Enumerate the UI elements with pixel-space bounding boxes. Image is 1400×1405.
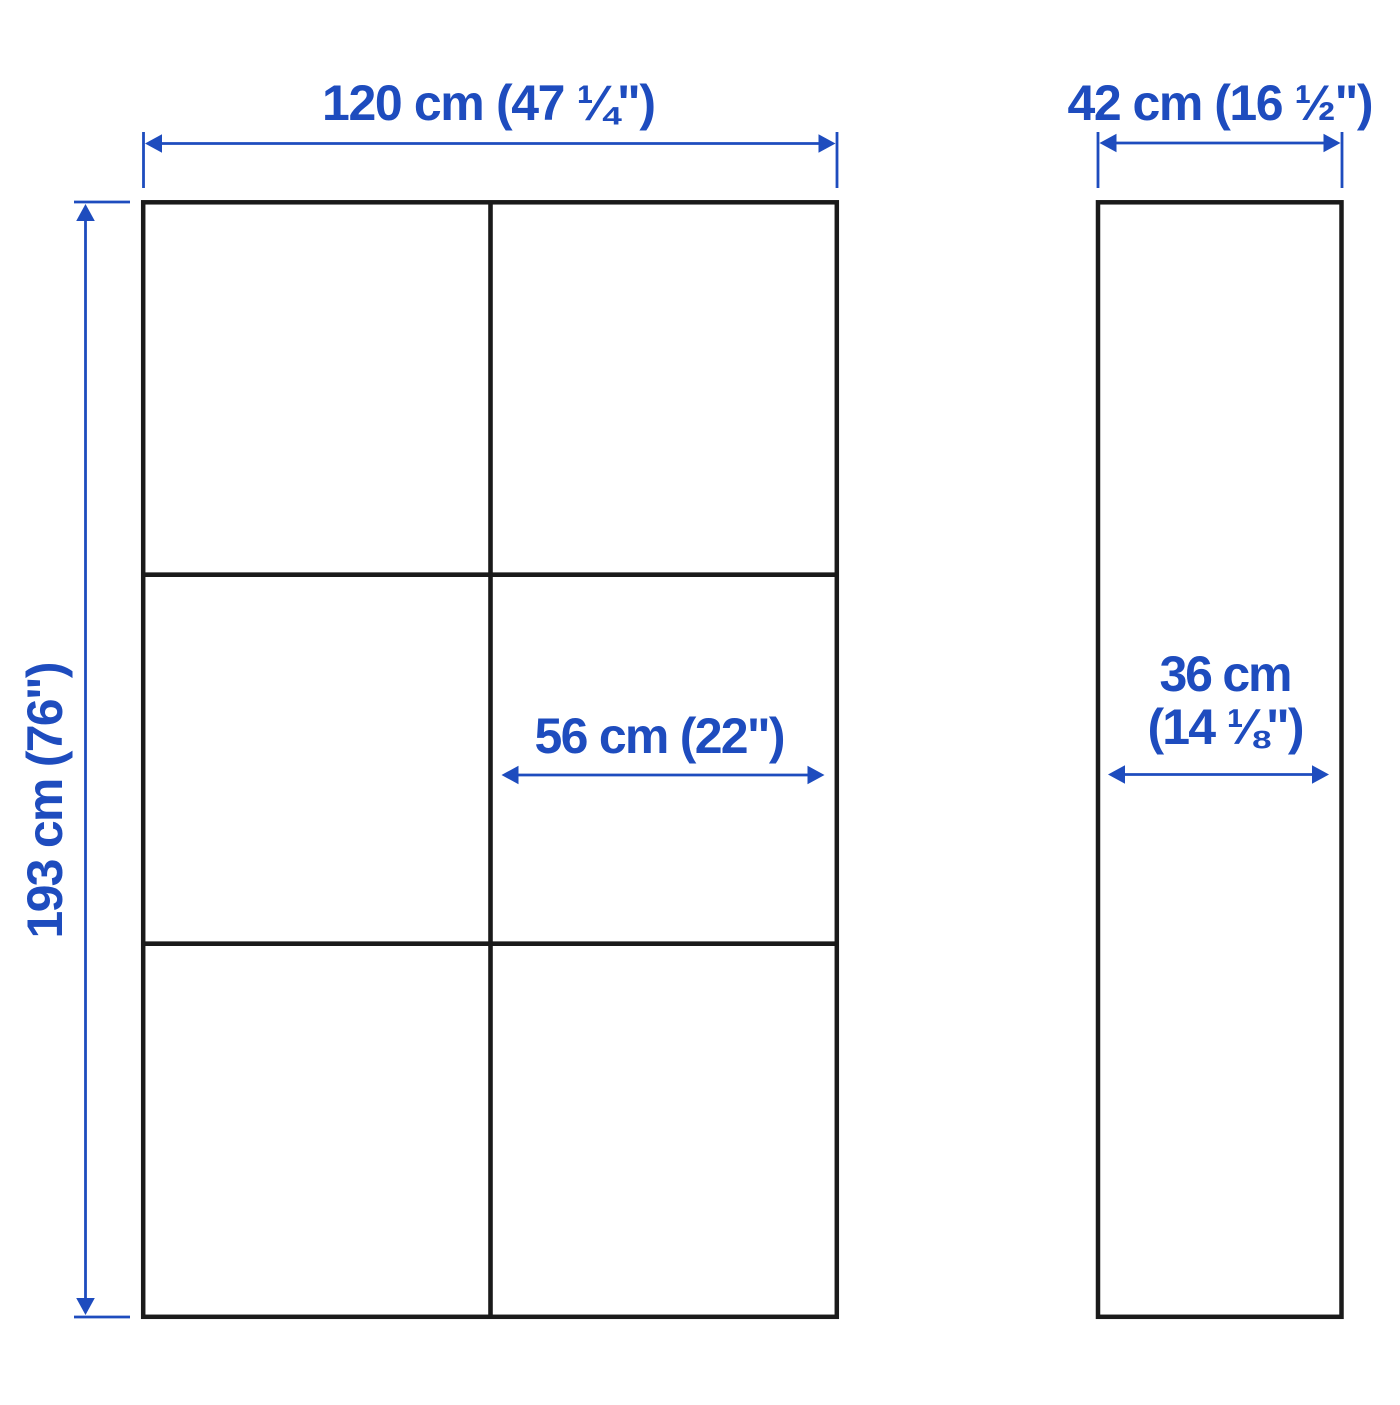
svg-text:(14 ⅛"): (14 ⅛") (1148, 699, 1305, 755)
svg-text:56 cm (22"): 56 cm (22") (535, 708, 786, 764)
svg-text:36 cm: 36 cm (1160, 646, 1293, 702)
svg-text:42 cm (16 ½"): 42 cm (16 ½") (1068, 75, 1374, 131)
svg-text:193 cm (76"): 193 cm (76") (17, 662, 73, 939)
svg-text:120 cm (47 ¼"): 120 cm (47 ¼") (322, 75, 656, 131)
